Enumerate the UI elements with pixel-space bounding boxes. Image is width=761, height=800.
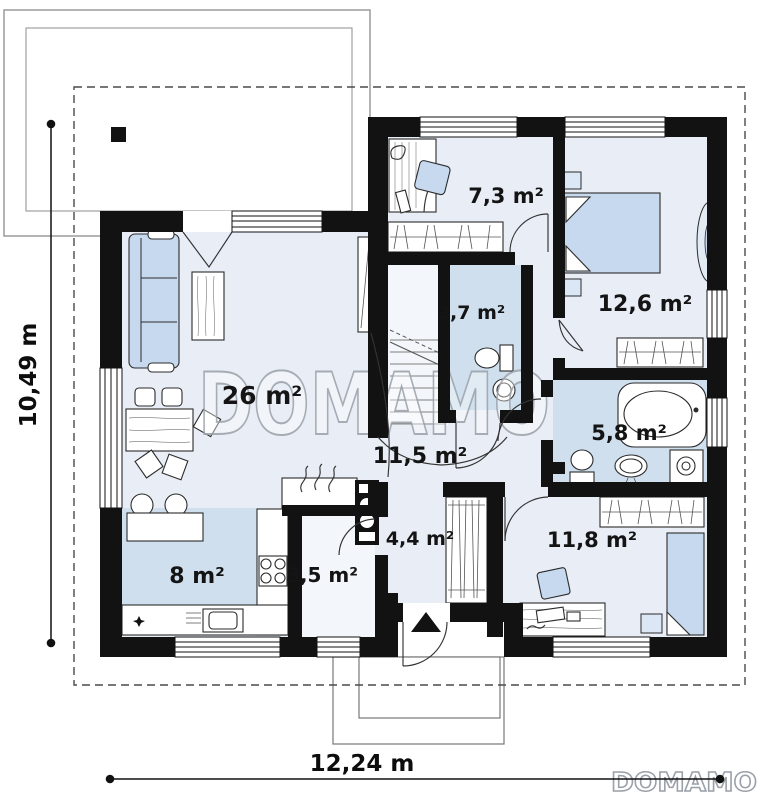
room-label-bathroom: 5,8 m² [591,421,667,445]
room-label-bedroom2: 11,8 m² [547,528,637,552]
window [420,117,517,137]
nightstand [641,614,662,633]
window [175,637,280,657]
coffee-table [192,272,224,340]
brand-logo: DOMAMO [611,768,757,798]
desk-chair [537,567,571,599]
terrace-door-opening [183,211,232,232]
window [317,637,360,657]
chair [162,388,182,406]
dimension-label-vertical: 10,49 m [16,323,42,428]
chair [135,388,155,406]
room-label-pantry: 3,5 m² [286,563,358,587]
floor-plan-page: DOMAMO [0,0,761,800]
window [553,637,650,657]
bedroom2-desk [520,603,605,636]
room-label-entrance: 4,4 m² [386,528,454,550]
window [232,211,322,232]
bedroom1-wardrobe [617,338,703,367]
room-label-toilet: 2,7 m² [437,302,505,324]
window [707,398,727,447]
window [100,368,122,508]
bathroom-toilet [570,450,594,484]
window [707,290,727,338]
room-label-living: 26 m² [222,381,303,410]
office-wardrobe [388,222,503,252]
room-label-bedroom1: 12,6 m² [598,292,693,317]
hall-closet [446,497,487,603]
floor-plan-drawing: DOMAMO [0,0,761,800]
bedroom2-wardrobe [600,497,704,527]
room-label-office: 7,3 m² [468,184,544,208]
window [565,117,665,137]
room-label-hallway: 11,5 m² [373,444,468,469]
towel-radiator [552,462,565,474]
sofa [129,230,179,372]
garage-outline [4,10,370,236]
dimension-label-horizontal: 12,24 m [310,751,415,777]
room-label-kitchen: 8 m² [169,564,225,589]
washing-machine [670,450,703,483]
chimney-symbol [111,127,126,142]
porch-steps [333,657,504,744]
logo-bottom-right: DOMAMO [611,768,757,798]
